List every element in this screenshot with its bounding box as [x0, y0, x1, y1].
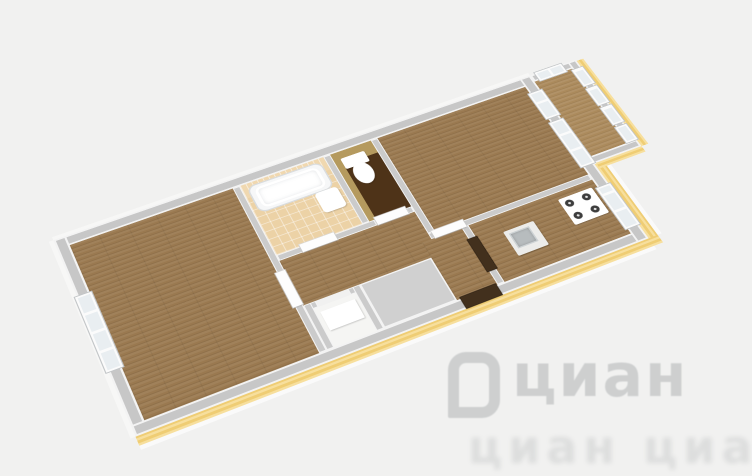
cian-watermark-text: циан	[512, 346, 688, 406]
stove-burner	[563, 198, 576, 207]
cian-watermark: циан	[448, 346, 688, 418]
floorplan-canvas: циан циан циан	[0, 0, 752, 476]
cian-watermark-tiled: циан циан	[468, 420, 752, 474]
stove-burner	[580, 192, 593, 201]
apartment-building	[53, 58, 718, 464]
kitchen-sink-basin	[509, 226, 539, 248]
stove-burner	[572, 211, 585, 221]
stove-burner	[589, 204, 602, 213]
cian-logo-icon	[448, 352, 500, 418]
floorplan-3d-scene	[42, 52, 731, 473]
